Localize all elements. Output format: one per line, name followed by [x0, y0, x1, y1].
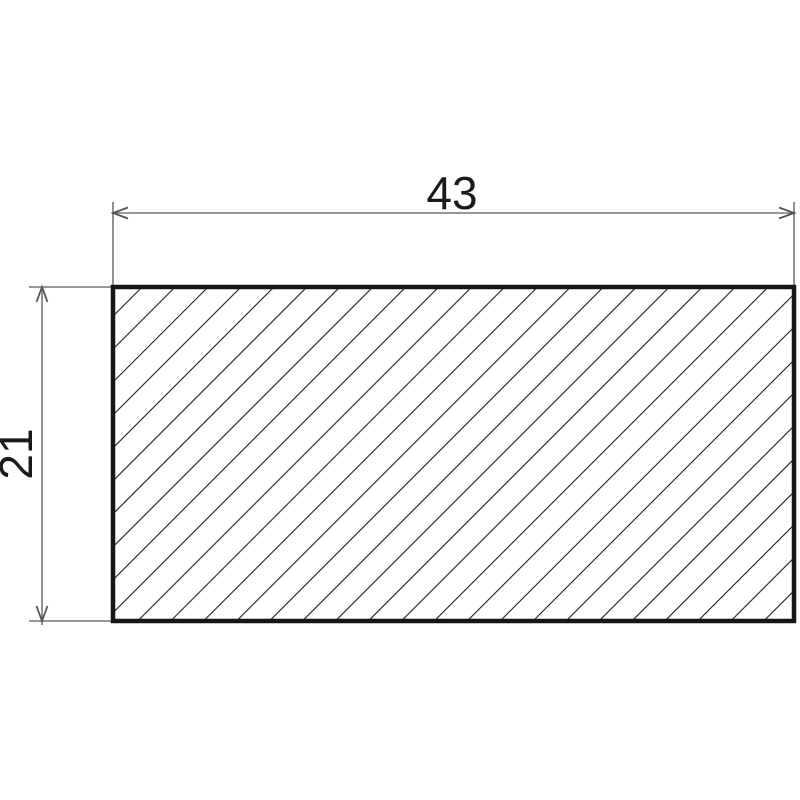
technical-drawing: 43 21	[0, 0, 800, 800]
drawing-canvas: 43 21	[0, 0, 800, 800]
hatched-section-rectangle	[113, 287, 794, 621]
dimension-label-width: 43	[426, 167, 477, 219]
dimension-label-height: 21	[0, 428, 42, 479]
